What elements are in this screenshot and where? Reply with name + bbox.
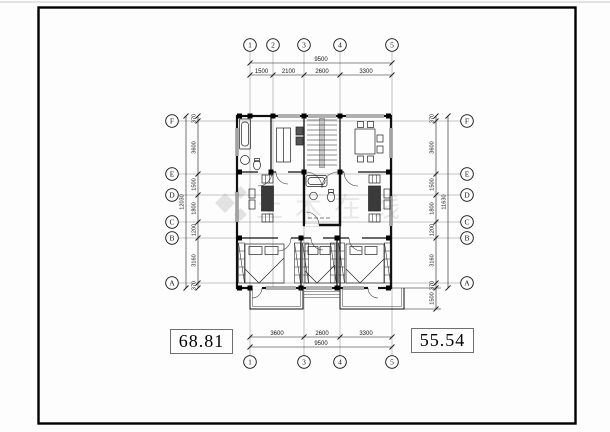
grid-bubble-label: 3	[302, 41, 306, 50]
chair-icon	[368, 122, 374, 128]
area-value-box-left: 68.81	[170, 329, 233, 354]
bed-fold-lines	[245, 258, 384, 283]
grid-bubble-label: 5	[390, 41, 394, 50]
toilet-icon	[327, 192, 334, 202]
dining-table-icon	[355, 129, 375, 154]
grid-bubble-label: 4	[338, 41, 342, 50]
grid-bubble-label: C	[169, 218, 174, 227]
pillow-icon	[320, 247, 330, 255]
grid-bubble-label: 2	[271, 41, 275, 50]
dim-left-total: 12030	[180, 194, 186, 210]
grid-bubble-label: C	[464, 218, 469, 227]
dim-left-seg: 3160	[192, 254, 198, 266]
grid-bubble-label: D	[464, 191, 470, 200]
balcony-right	[340, 288, 404, 309]
grid-bubbles-bottom	[244, 356, 399, 369]
chair-icon	[377, 146, 383, 153]
grid-bubble-label: B	[169, 234, 174, 243]
wardrobe-icons	[239, 243, 391, 283]
chair-icon	[358, 122, 364, 128]
living-room-right	[369, 175, 391, 222]
grid-bubble-label: 1	[248, 41, 252, 50]
balcony-right-rail	[343, 288, 402, 307]
pillow-icon	[365, 247, 377, 255]
grid-bubble-label: E	[465, 170, 470, 179]
dim-left-seg: 1800	[192, 202, 198, 214]
sink-icon	[241, 156, 250, 165]
dim-left-seg: 370	[192, 281, 198, 290]
dim-right-seg: 1500	[430, 178, 436, 190]
grid-bubble-label: A	[464, 279, 470, 288]
pillow-icon	[249, 247, 262, 255]
dim-right-seg: 370	[430, 114, 436, 123]
grid-bubble-label: 3	[302, 358, 306, 367]
grid-bubble-label: 4	[338, 358, 342, 367]
staircase-icon	[307, 119, 337, 168]
grid-bubble-label: D	[169, 191, 175, 200]
bathroom-center	[306, 176, 335, 219]
living-room-left	[249, 175, 274, 222]
chair-icon	[384, 189, 390, 198]
appliance-icon	[296, 137, 303, 145]
chair-icon	[384, 200, 390, 209]
dim-left-seg: 1500	[192, 178, 198, 190]
pillow-icon	[350, 247, 362, 255]
appliance-icon	[296, 127, 303, 135]
entry-steps	[304, 292, 340, 298]
dim-right-balcony: 1500	[430, 292, 436, 304]
dim-bottom-total: 9500	[314, 341, 328, 347]
grid-bubble-label: E	[170, 170, 175, 179]
watermark-logo-icon	[215, 186, 247, 221]
dim-top-seg: 1500	[255, 69, 269, 75]
table-icon	[369, 186, 381, 211]
dim-bottom-seg: 3600	[270, 331, 284, 337]
grid-bubble-label: 1	[248, 358, 252, 367]
grid-bubbles-top	[244, 39, 399, 52]
pillow-icon	[265, 247, 278, 255]
cad-drawing-page: 1 2 3 4 5 1 3 4 5 F E D C B A F E D C B …	[0, 0, 610, 432]
area-value-box-right: 55.54	[411, 328, 474, 353]
bedrooms	[245, 244, 384, 283]
sink-icon	[310, 192, 318, 200]
dim-right-seg: 370	[430, 281, 436, 290]
chair-icon	[358, 156, 364, 162]
bathtub-inner-icon	[242, 122, 249, 146]
kitchen	[277, 127, 304, 162]
exterior-walls	[237, 116, 391, 288]
grid-bubble-label: F	[170, 117, 174, 126]
interior-walls	[237, 116, 391, 288]
grid-bubbles-right	[461, 115, 474, 290]
grid-bubble-label: A	[169, 279, 175, 288]
dim-left-seg: 3600	[192, 141, 198, 153]
dining-room	[355, 122, 383, 163]
table-icon	[262, 186, 274, 211]
grid-bubbles-left	[166, 115, 179, 290]
chair-icon	[377, 135, 383, 142]
chair-icon	[369, 214, 380, 222]
dim-left-seg: 370	[192, 114, 198, 123]
dim-right-seg: 1800	[430, 202, 436, 214]
grid-bubble-label: 5	[390, 358, 394, 367]
grid-bubble-label: B	[464, 234, 469, 243]
dim-right-seg: 3600	[430, 141, 436, 153]
dim-bottom-seg: 2600	[315, 331, 329, 337]
dim-right-seg: 3160	[430, 254, 436, 266]
dim-top-seg: 2100	[282, 69, 296, 75]
dim-left-seg: 1200	[192, 224, 198, 236]
chair-icon	[368, 156, 374, 162]
chair-icon	[262, 214, 273, 222]
dim-bottom-seg: 3300	[359, 331, 373, 337]
pillow-icon	[308, 247, 318, 255]
chair-icon	[369, 175, 380, 183]
floor-plan-drawing: 1 2 3 4 5 1 3 4 5 F E D C B A F E D C B …	[0, 0, 610, 432]
dim-top-total: 9500	[314, 57, 328, 63]
dim-right-seg: 1200	[430, 224, 436, 236]
dim-top-seg: 3300	[359, 69, 373, 75]
grid-bubble-label: F	[465, 117, 469, 126]
balconies	[250, 288, 404, 309]
dim-right-total: 11630	[442, 194, 448, 209]
dim-top-seg: 2600	[315, 69, 329, 75]
balcony-left	[250, 288, 303, 309]
balcony-left-rail	[253, 288, 301, 307]
